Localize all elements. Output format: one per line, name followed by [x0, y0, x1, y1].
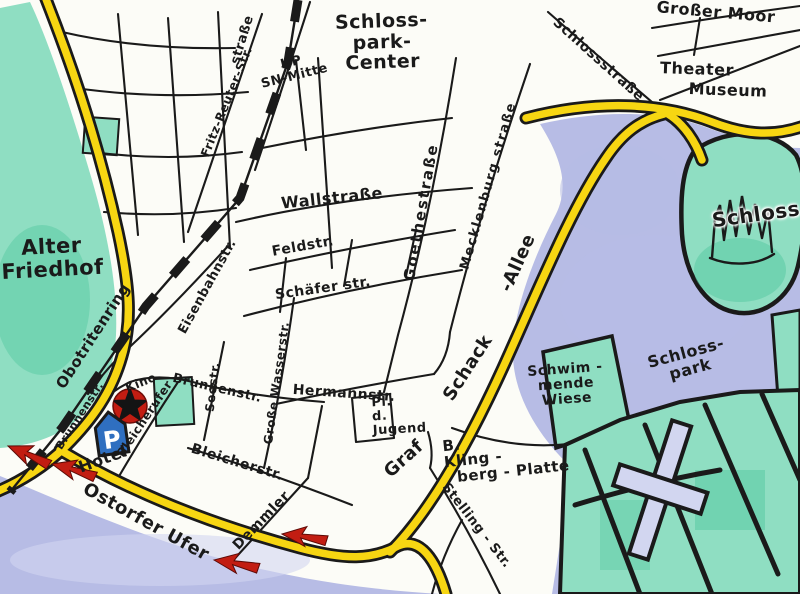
label-museum: Museum — [688, 80, 767, 100]
label-pl-d-jugend: Pl. d. Jugend — [371, 394, 427, 439]
label-schwimmende-wiese: Schwim - mende Wiese — [527, 360, 605, 410]
label-theater: Theater — [660, 59, 734, 79]
label-alter-friedhof: Alter Friedhof — [0, 233, 104, 284]
label-schlosspark-center: Schloss- park- Center — [335, 10, 430, 75]
hand-drawn-city-map: P straße Schloss- park- Center HP SN-Mit… — [0, 0, 800, 594]
lake-southwest — [0, 476, 440, 594]
